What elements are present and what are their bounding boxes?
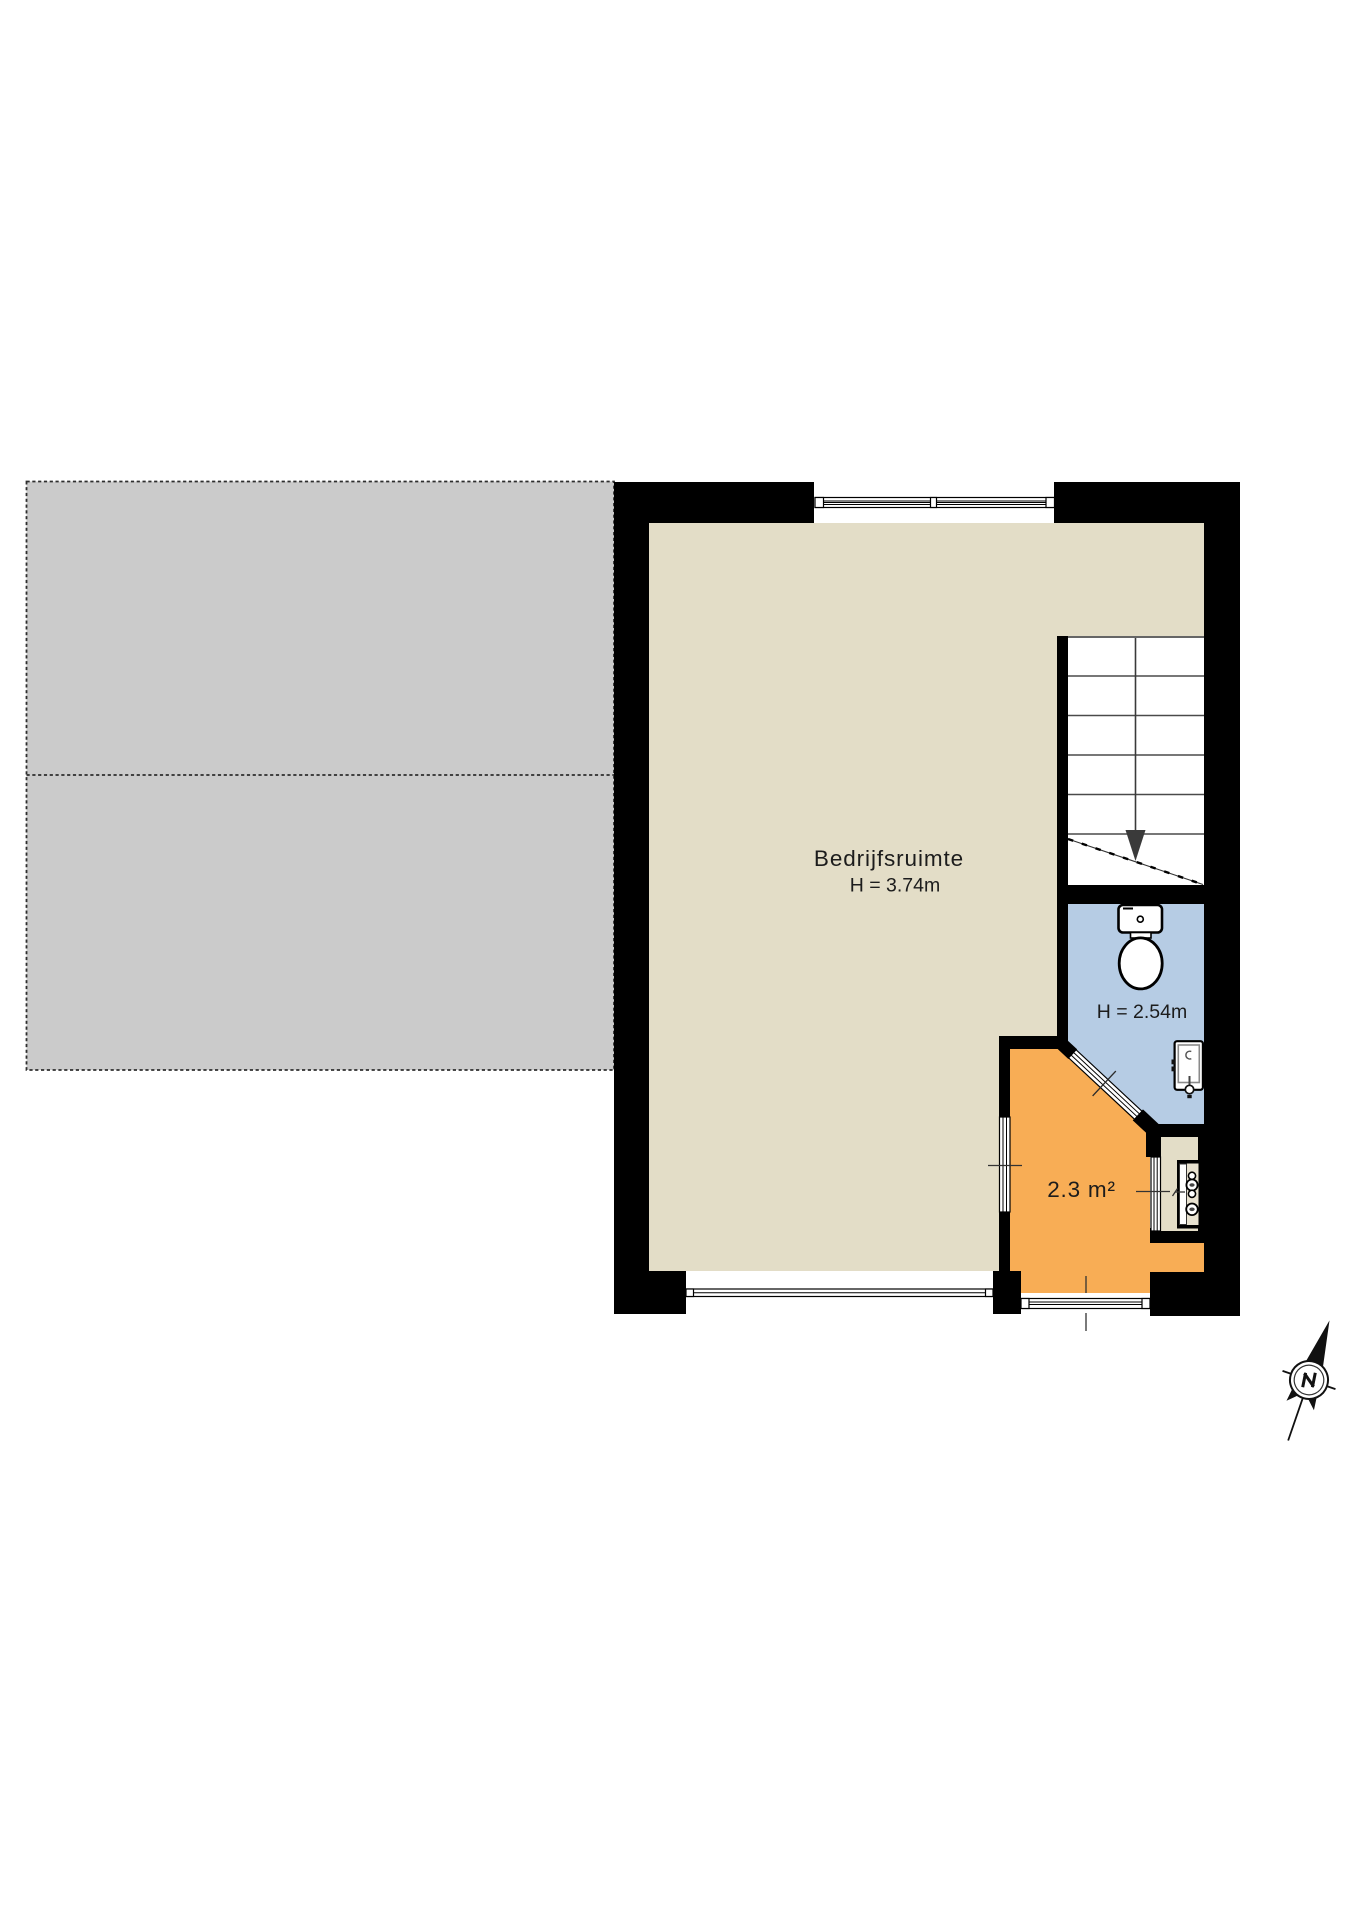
svg-text:Bedrijfsruimte: Bedrijfsruimte bbox=[814, 846, 964, 871]
svg-text:H = 2.54m: H = 2.54m bbox=[1097, 1001, 1188, 1023]
svg-text:H = 3.74m: H = 3.74m bbox=[850, 875, 941, 897]
svg-text:2.3 m²: 2.3 m² bbox=[1047, 1177, 1116, 1202]
